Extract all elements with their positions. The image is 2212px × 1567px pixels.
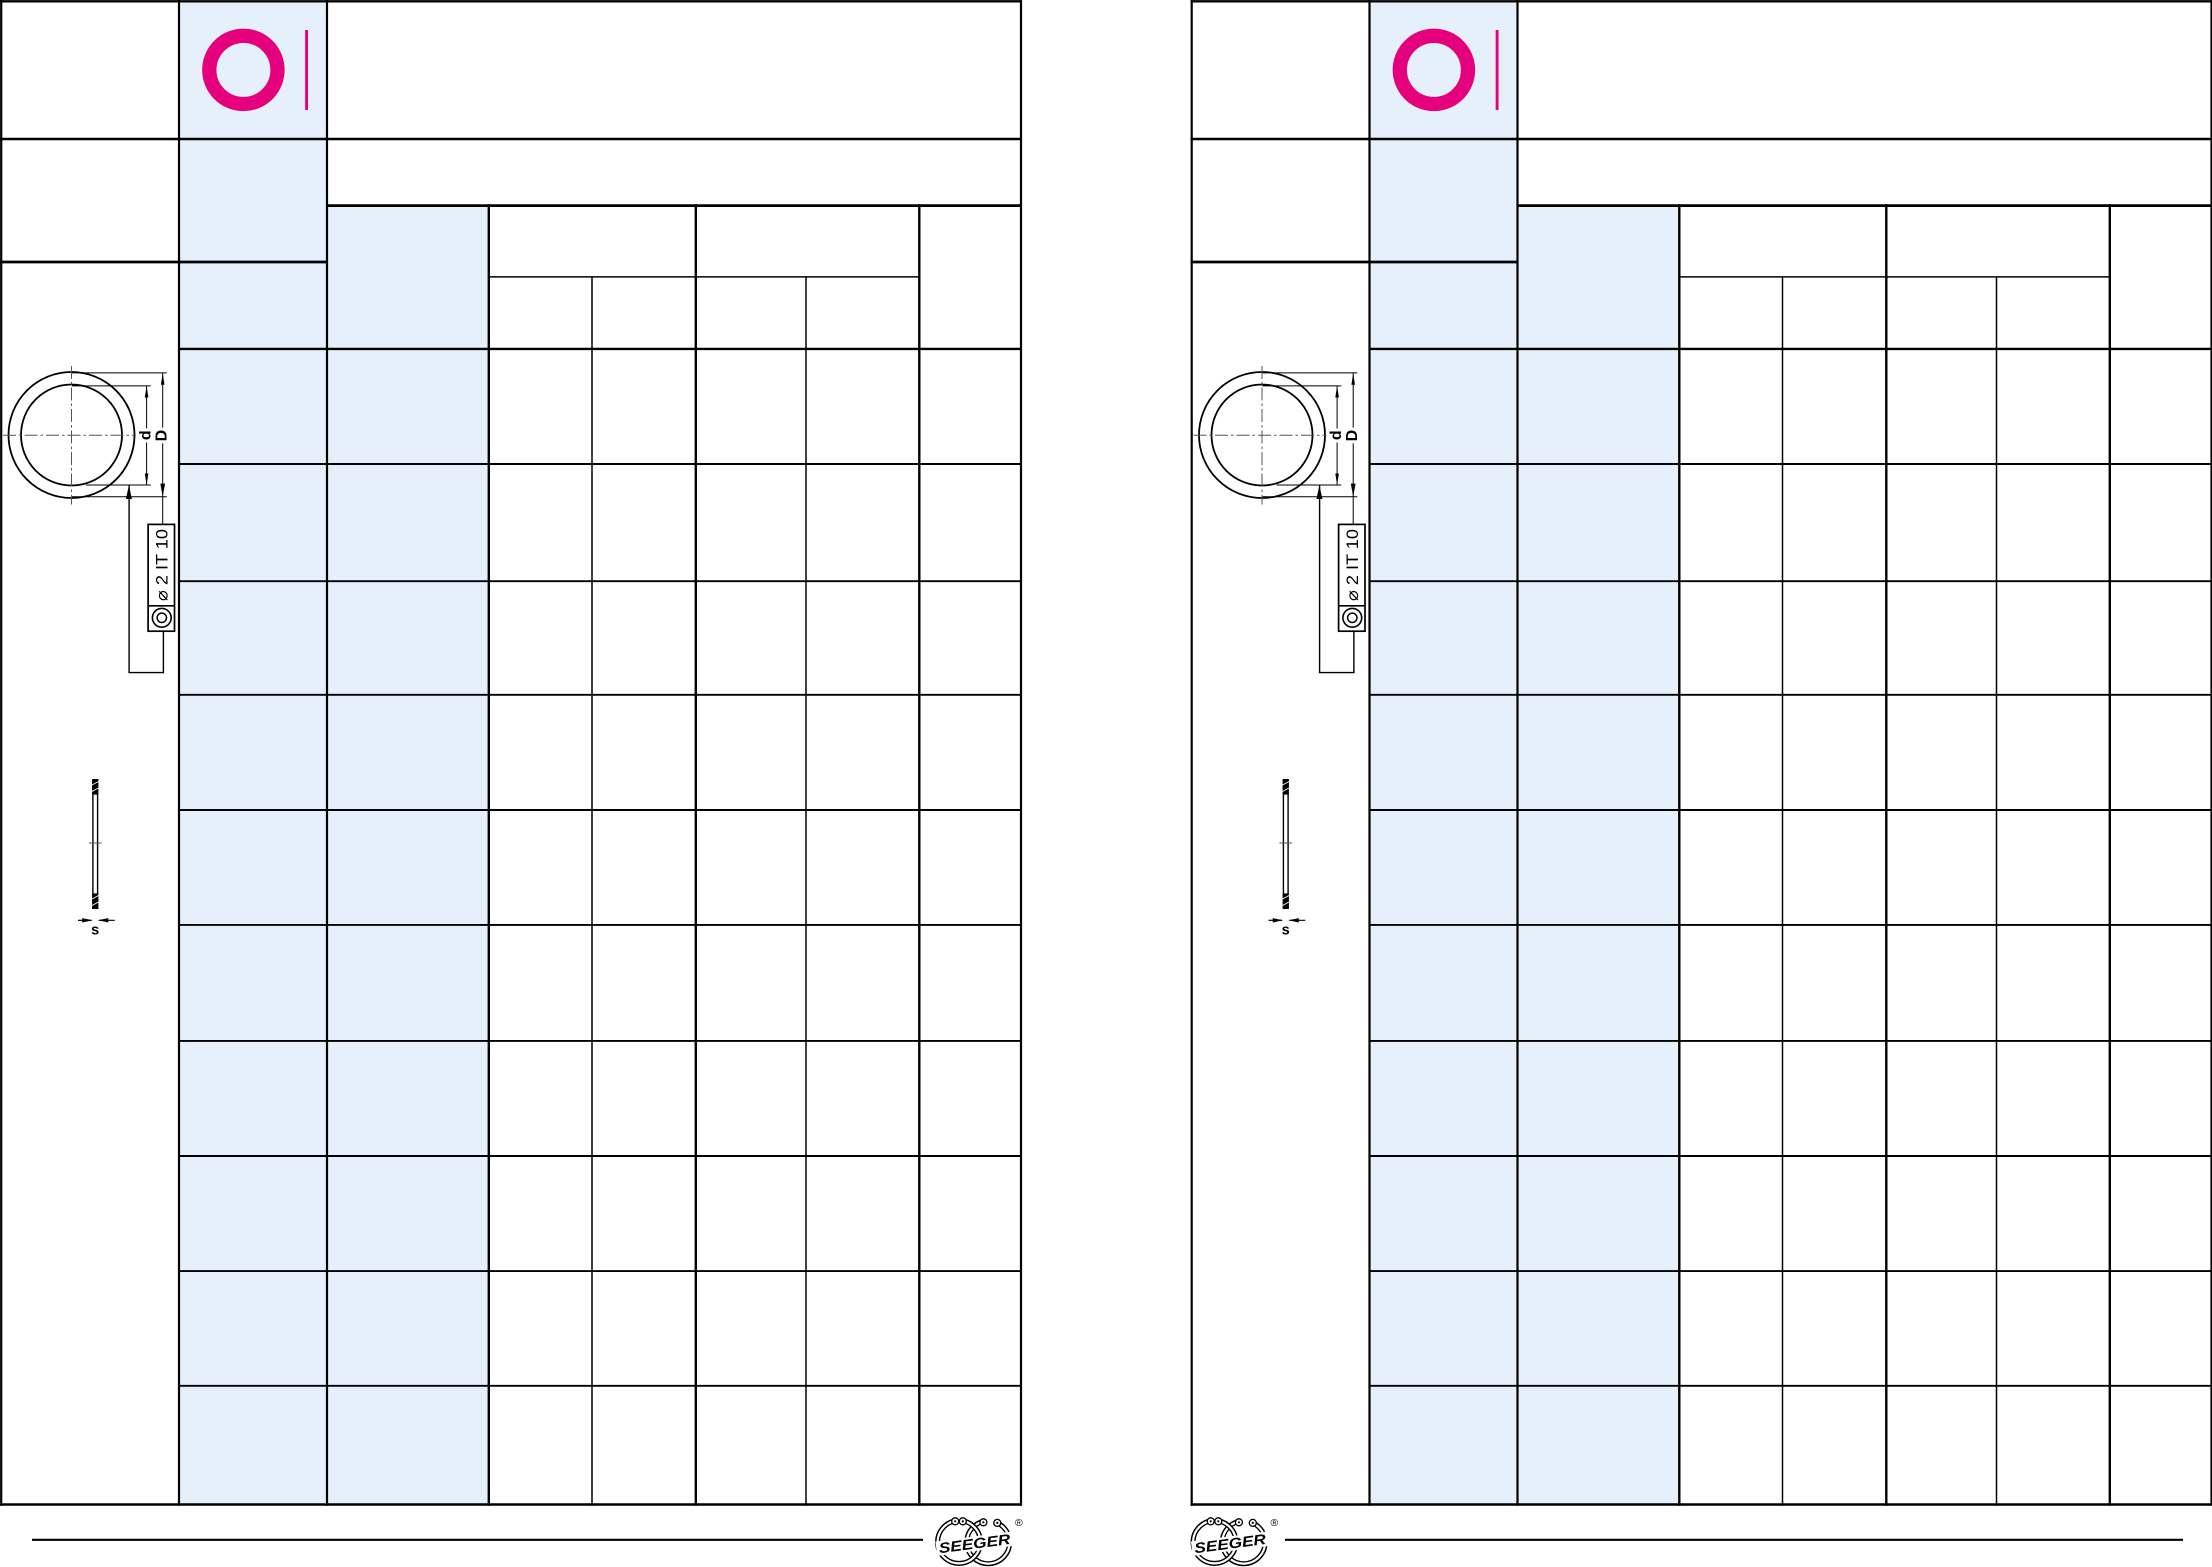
svg-text:s: s xyxy=(1282,923,1290,939)
svg-text:D: D xyxy=(154,430,171,442)
svg-text:d: d xyxy=(138,430,155,440)
svg-text:d: d xyxy=(1328,430,1345,440)
svg-text:®: ® xyxy=(1271,1517,1279,1529)
svg-text:⌀ 2 IT 10: ⌀ 2 IT 10 xyxy=(1343,529,1362,601)
svg-text:®: ® xyxy=(1015,1517,1023,1529)
svg-text:D: D xyxy=(1344,430,1361,442)
svg-text:s: s xyxy=(91,923,99,939)
svg-text:⌀ 2 IT 10: ⌀ 2 IT 10 xyxy=(153,529,172,601)
